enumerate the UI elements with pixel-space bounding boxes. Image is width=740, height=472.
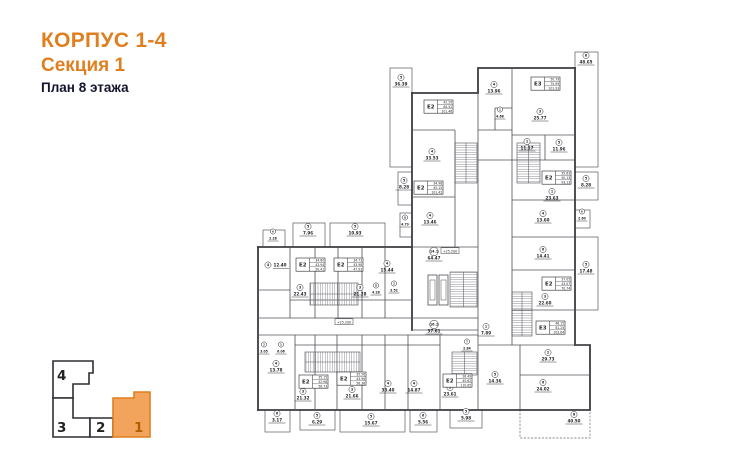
room-label: 65.56 — [415, 412, 432, 425]
room-label: 23.52 — [389, 281, 400, 293]
svg-text:110.65: 110.65 — [460, 383, 471, 387]
svg-text:11.96: 11.96 — [553, 147, 566, 152]
floor-title: План 8 этажа — [41, 81, 167, 95]
room-label: 229.73 — [540, 349, 557, 362]
room-label: 123.63 — [544, 188, 561, 201]
svg-text:23.63: 23.63 — [546, 196, 559, 201]
svg-text:21.32: 21.32 — [297, 396, 310, 401]
svg-text:E2: E2 — [545, 176, 553, 182]
room-label: 84.28 — [371, 283, 382, 295]
room-label: 413.78 — [268, 360, 285, 373]
apartment-label: E234.6043.9450.41 — [296, 258, 325, 271]
svg-text:15.44: 15.44 — [381, 268, 394, 273]
room-label: 848.65 — [578, 52, 595, 65]
svg-text:21.66: 21.66 — [346, 394, 359, 399]
keyplan-label-2: 2 — [96, 420, 105, 436]
keyplan-label-4: 4 — [57, 368, 66, 384]
svg-text:26.49: 26.49 — [462, 375, 471, 379]
room-label: 84.79 — [400, 215, 411, 227]
keyplan-label-3: 3 — [57, 420, 66, 436]
svg-text:52.98: 52.98 — [318, 380, 327, 384]
svg-text:E3: E3 — [539, 326, 547, 332]
svg-text:45.15: 45.15 — [433, 186, 442, 190]
svg-text:2.60: 2.60 — [578, 217, 586, 221]
svg-text:3.17: 3.17 — [272, 418, 282, 423]
room-label: 57.96 — [300, 223, 317, 236]
svg-text:42.20: 42.20 — [443, 101, 452, 105]
room-label: 412.40 — [265, 262, 289, 268]
title-block: КОРПУС 1-4 Секция 1 План 8 этажа — [41, 30, 167, 95]
floor-plan: 536.39848.65413.96325.7724.68111.17511.9… — [250, 46, 606, 446]
room-label: 515.67 — [363, 413, 380, 426]
svg-text:14.41: 14.41 — [537, 254, 550, 259]
apartment-label: E242.2064.52101.46 — [424, 100, 453, 113]
svg-text:34.73: 34.73 — [353, 259, 362, 263]
svg-text:64.47: 64.47 — [428, 256, 441, 261]
svg-text:43.98: 43.98 — [353, 263, 362, 267]
svg-text:7.96: 7.96 — [303, 231, 313, 236]
room-label: 63.17 — [269, 410, 286, 423]
svg-text:6.06: 6.06 — [277, 350, 285, 354]
svg-text:13.96: 13.96 — [488, 89, 501, 94]
apartment-label: E235.6350.1393.13 — [542, 171, 571, 184]
apartment-label: E350.7975.99101.93 — [531, 77, 560, 90]
svg-text:6: 6 — [272, 230, 274, 234]
svg-text:10.93: 10.93 — [349, 231, 362, 236]
svg-text:E2: E2 — [545, 282, 553, 288]
svg-text:35.63: 35.63 — [561, 172, 570, 176]
svg-text:17.48: 17.48 — [580, 269, 593, 274]
svg-text:+25.200: +25.200 — [443, 249, 457, 253]
svg-text:E2: E2 — [299, 263, 307, 269]
apartment-label: E237.0543.0770.74 — [542, 277, 571, 290]
room-label: 514.36 — [487, 371, 504, 384]
svg-text:24.02: 24.02 — [537, 387, 550, 392]
svg-text:+25.200: +25.200 — [337, 320, 351, 324]
room-label: 322.43 — [292, 284, 309, 297]
svg-text:15.67: 15.67 — [365, 421, 378, 426]
room-label: 413.96 — [486, 81, 503, 94]
room-label: 24.68 — [495, 107, 506, 119]
svg-text:E2: E2 — [427, 105, 435, 111]
svg-text:29.73: 29.73 — [542, 357, 555, 362]
room-label: 413.60 — [535, 210, 552, 223]
svg-text:13.60: 13.60 — [537, 218, 550, 223]
apartment-label: E234.7343.9847.93 — [334, 258, 363, 271]
svg-text:6.29: 6.29 — [312, 420, 322, 425]
room-label: 16.137.61 — [426, 320, 443, 334]
svg-text:103.64: 103.64 — [553, 330, 564, 334]
level-mark: +25.200 — [441, 248, 459, 254]
apartment-label: E234.9845.15101.42 — [414, 181, 443, 194]
room-label: 58.28 — [578, 175, 595, 188]
svg-text:2: 2 — [499, 108, 501, 112]
svg-text:8: 8 — [375, 284, 377, 288]
svg-text:7.89: 7.89 — [481, 331, 491, 336]
svg-text:1: 1 — [280, 343, 282, 347]
room-label: 614.41 — [535, 246, 552, 259]
room-label: 413.46 — [422, 212, 439, 225]
room-label: 322.60 — [537, 293, 554, 306]
building-title: КОРПУС 1-4 — [41, 30, 167, 52]
svg-text:14.36: 14.36 — [489, 379, 502, 384]
keyplan: 4 3 2 1 — [48, 356, 154, 440]
svg-text:13.78: 13.78 — [270, 368, 283, 373]
svg-text:34.60: 34.60 — [315, 259, 324, 263]
svg-text:47.93: 47.93 — [353, 267, 362, 271]
room-label: 17.89 — [478, 323, 495, 336]
svg-text:2: 2 — [263, 343, 265, 347]
svg-text:33.53: 33.53 — [426, 156, 439, 161]
svg-text:23.61: 23.61 — [444, 392, 457, 397]
svg-text:4.79: 4.79 — [401, 223, 409, 227]
svg-text:101.46: 101.46 — [441, 109, 452, 113]
svg-text:4.68: 4.68 — [496, 115, 504, 119]
room-label: 510.93 — [347, 223, 364, 236]
svg-text:2: 2 — [393, 282, 395, 286]
room-label: 321.32 — [295, 388, 312, 401]
svg-text:22.60: 22.60 — [539, 301, 552, 306]
svg-text:35.56: 35.56 — [356, 373, 365, 377]
svg-text:70.74: 70.74 — [561, 286, 570, 290]
room-label: 840.50 — [566, 411, 583, 424]
room-label: 433.53 — [424, 148, 441, 161]
svg-text:8: 8 — [404, 216, 406, 220]
page: { "title": { "line1": "КОРПУС 1-4", "lin… — [0, 0, 740, 472]
svg-text:22.43: 22.43 — [294, 292, 307, 297]
room-label: 433.40 — [380, 380, 397, 393]
svg-text:16.1: 16.1 — [430, 323, 439, 327]
room-label: 536.39 — [393, 74, 410, 87]
svg-text:4.28: 4.28 — [372, 291, 380, 295]
svg-text:75.99: 75.99 — [550, 82, 559, 86]
svg-text:34.98: 34.98 — [433, 182, 442, 186]
svg-text:8.28: 8.28 — [399, 185, 409, 190]
svg-text:8.28: 8.28 — [581, 183, 591, 188]
room-label: 111.17 — [519, 138, 536, 151]
svg-text:45.62: 45.62 — [462, 379, 471, 383]
keyplan-label-1: 1 — [134, 420, 143, 436]
svg-text:56.73: 56.73 — [318, 384, 327, 388]
svg-text:E2: E2 — [337, 263, 345, 269]
svg-text:48.15: 48.15 — [555, 322, 564, 326]
room-label: 517.48 — [578, 261, 595, 274]
level-mark: +25.200 — [335, 319, 353, 325]
svg-text:E2: E2 — [417, 186, 425, 192]
svg-text:3.05: 3.05 — [260, 350, 268, 354]
svg-text:21.28: 21.28 — [354, 292, 367, 297]
svg-text:E2: E2 — [302, 380, 310, 386]
svg-text:3.52: 3.52 — [390, 289, 398, 293]
svg-text:14.1: 14.1 — [430, 250, 439, 254]
room-label: 511.96 — [551, 139, 568, 152]
svg-text:37.61: 37.61 — [428, 329, 441, 334]
svg-text:56.36: 56.36 — [356, 381, 365, 385]
svg-text:40.50: 40.50 — [568, 419, 581, 424]
room-label: 72.84 — [462, 339, 473, 351]
svg-text:11.17: 11.17 — [521, 146, 534, 151]
svg-text:33.40: 33.40 — [382, 388, 395, 393]
svg-text:E3: E3 — [534, 82, 542, 88]
svg-text:35.15: 35.15 — [318, 376, 327, 380]
room-label: 14.164.47 — [426, 247, 443, 261]
section-title: Секция 1 — [41, 56, 167, 76]
apartment-label: E235.5643.9656.36 — [337, 372, 366, 385]
svg-text:101.42: 101.42 — [431, 190, 442, 194]
room-label: 415.44 — [379, 260, 396, 273]
svg-text:50.79: 50.79 — [550, 78, 559, 82]
svg-text:2.28: 2.28 — [269, 237, 277, 241]
svg-text:101.93: 101.93 — [548, 86, 559, 90]
svg-text:13.46: 13.46 — [424, 220, 437, 225]
svg-text:48.65: 48.65 — [580, 60, 593, 65]
room-label: 62.60 — [577, 209, 588, 221]
apartment-label: E235.1552.9856.73 — [299, 375, 328, 388]
svg-text:93.13: 93.13 — [561, 180, 570, 184]
apartment-label: E226.4945.62110.65 — [443, 374, 472, 387]
svg-text:64.52: 64.52 — [443, 105, 452, 109]
svg-text:43.07: 43.07 — [561, 282, 570, 286]
room-label: 23.05 — [259, 342, 270, 354]
svg-text:43.96: 43.96 — [356, 377, 365, 381]
svg-text:6: 6 — [581, 210, 583, 214]
svg-text:2.84: 2.84 — [463, 347, 471, 351]
svg-text:43.94: 43.94 — [315, 263, 324, 267]
keyplan-section-1-active[interactable] — [113, 392, 150, 437]
svg-text:50.13: 50.13 — [561, 176, 570, 180]
room-label: 325.77 — [532, 108, 549, 121]
room-label: 56.29 — [309, 412, 326, 425]
svg-text:25.77: 25.77 — [534, 116, 547, 121]
svg-text:61.25: 61.25 — [555, 326, 564, 330]
svg-text:12.40: 12.40 — [274, 263, 287, 268]
svg-text:5.56: 5.56 — [418, 420, 428, 425]
room-label: 321.66 — [344, 386, 361, 399]
svg-text:5.98: 5.98 — [461, 416, 471, 421]
svg-text:50.41: 50.41 — [315, 267, 324, 271]
svg-text:7: 7 — [466, 340, 468, 344]
room-label: 62.28 — [268, 229, 279, 241]
svg-text:E2: E2 — [340, 377, 348, 383]
room-label: 624.02 — [535, 379, 552, 392]
elevator-shafts — [428, 275, 448, 305]
svg-text:37.05: 37.05 — [561, 278, 570, 282]
svg-text:36.39: 36.39 — [395, 82, 408, 87]
svg-text:14.87: 14.87 — [408, 388, 421, 393]
apartment-label: E348.1561.25103.64 — [536, 321, 565, 334]
room-label: 16.06 — [276, 342, 287, 354]
svg-text:E2: E2 — [446, 379, 454, 385]
